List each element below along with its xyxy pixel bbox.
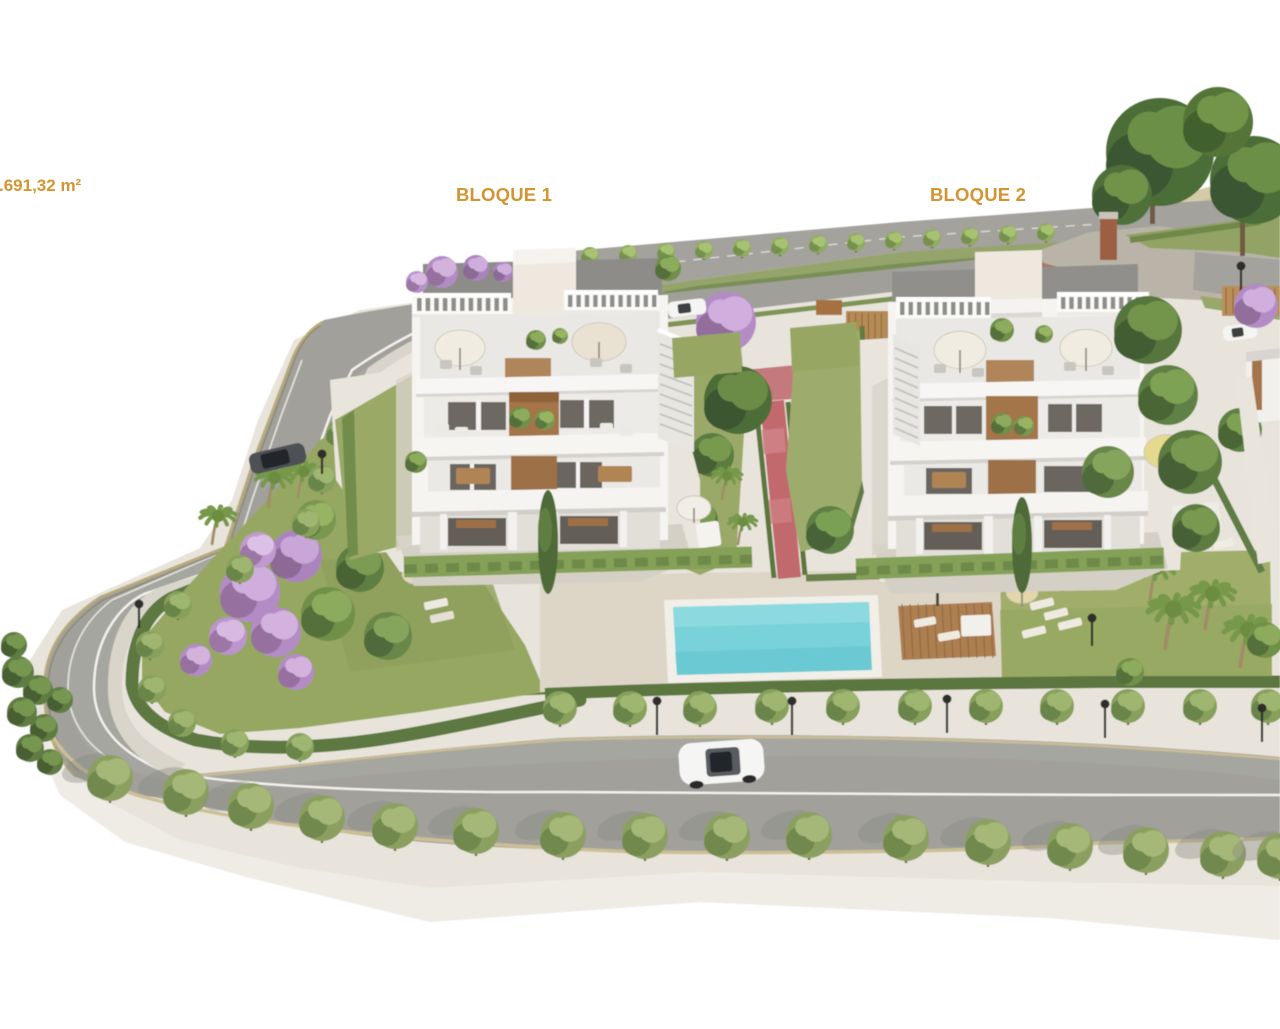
svg-text:BLOQUE 2: BLOQUE 2: [930, 184, 1026, 205]
svg-text:BLOQUE 1: BLOQUE 1: [456, 184, 552, 205]
svg-text:.691,32 m²: .691,32 m²: [0, 176, 82, 195]
